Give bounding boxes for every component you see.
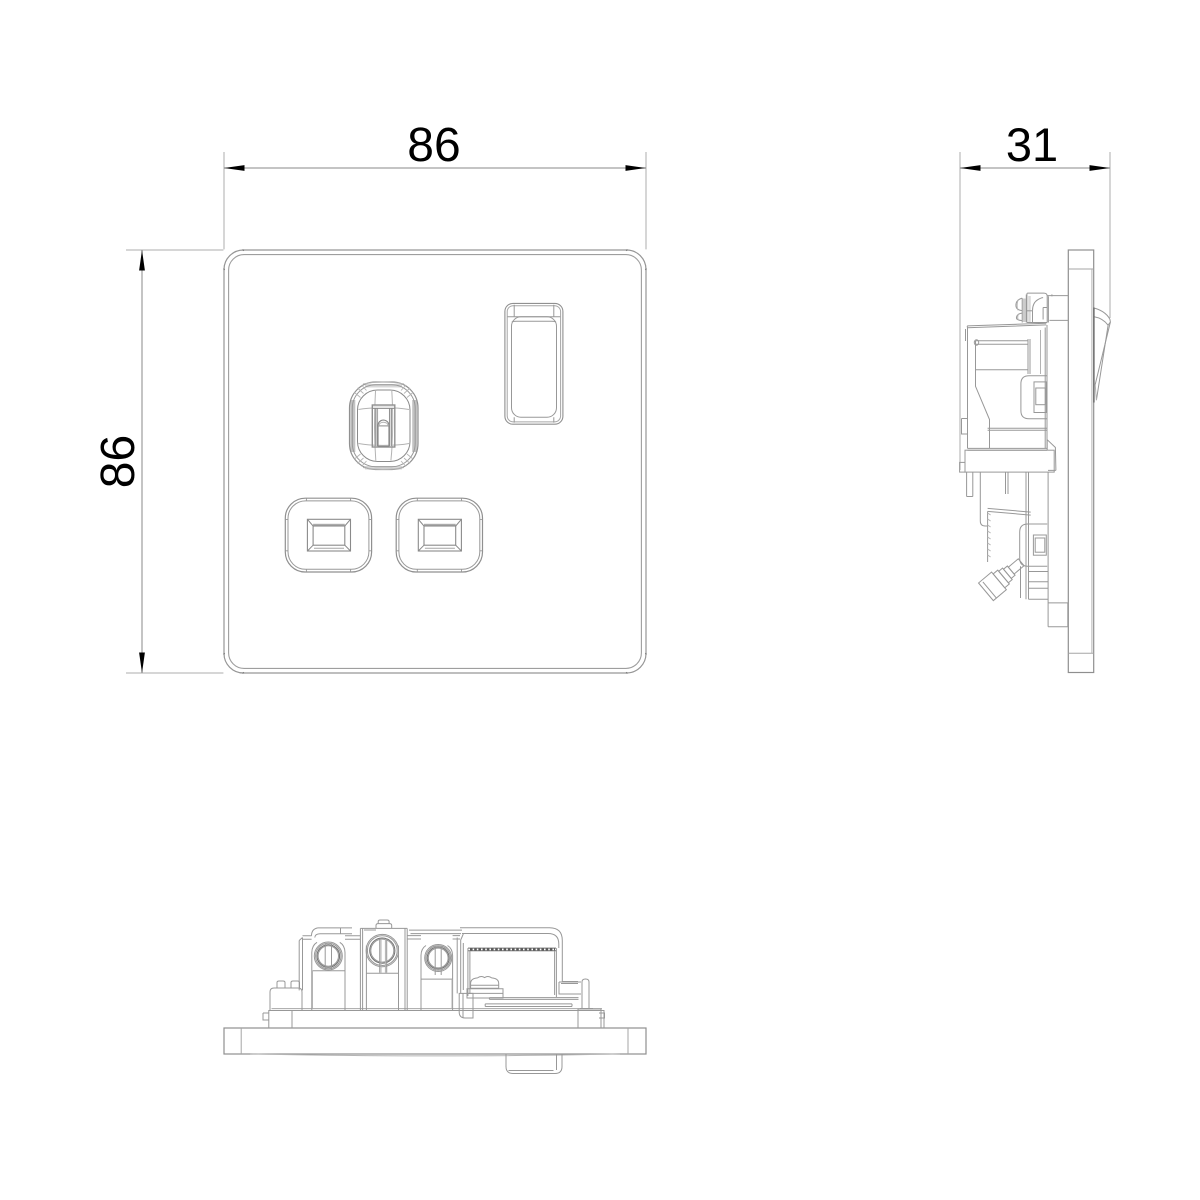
svg-text:86: 86 bbox=[407, 119, 460, 172]
svg-text:31: 31 bbox=[1006, 118, 1058, 171]
svg-text:86: 86 bbox=[92, 435, 145, 488]
